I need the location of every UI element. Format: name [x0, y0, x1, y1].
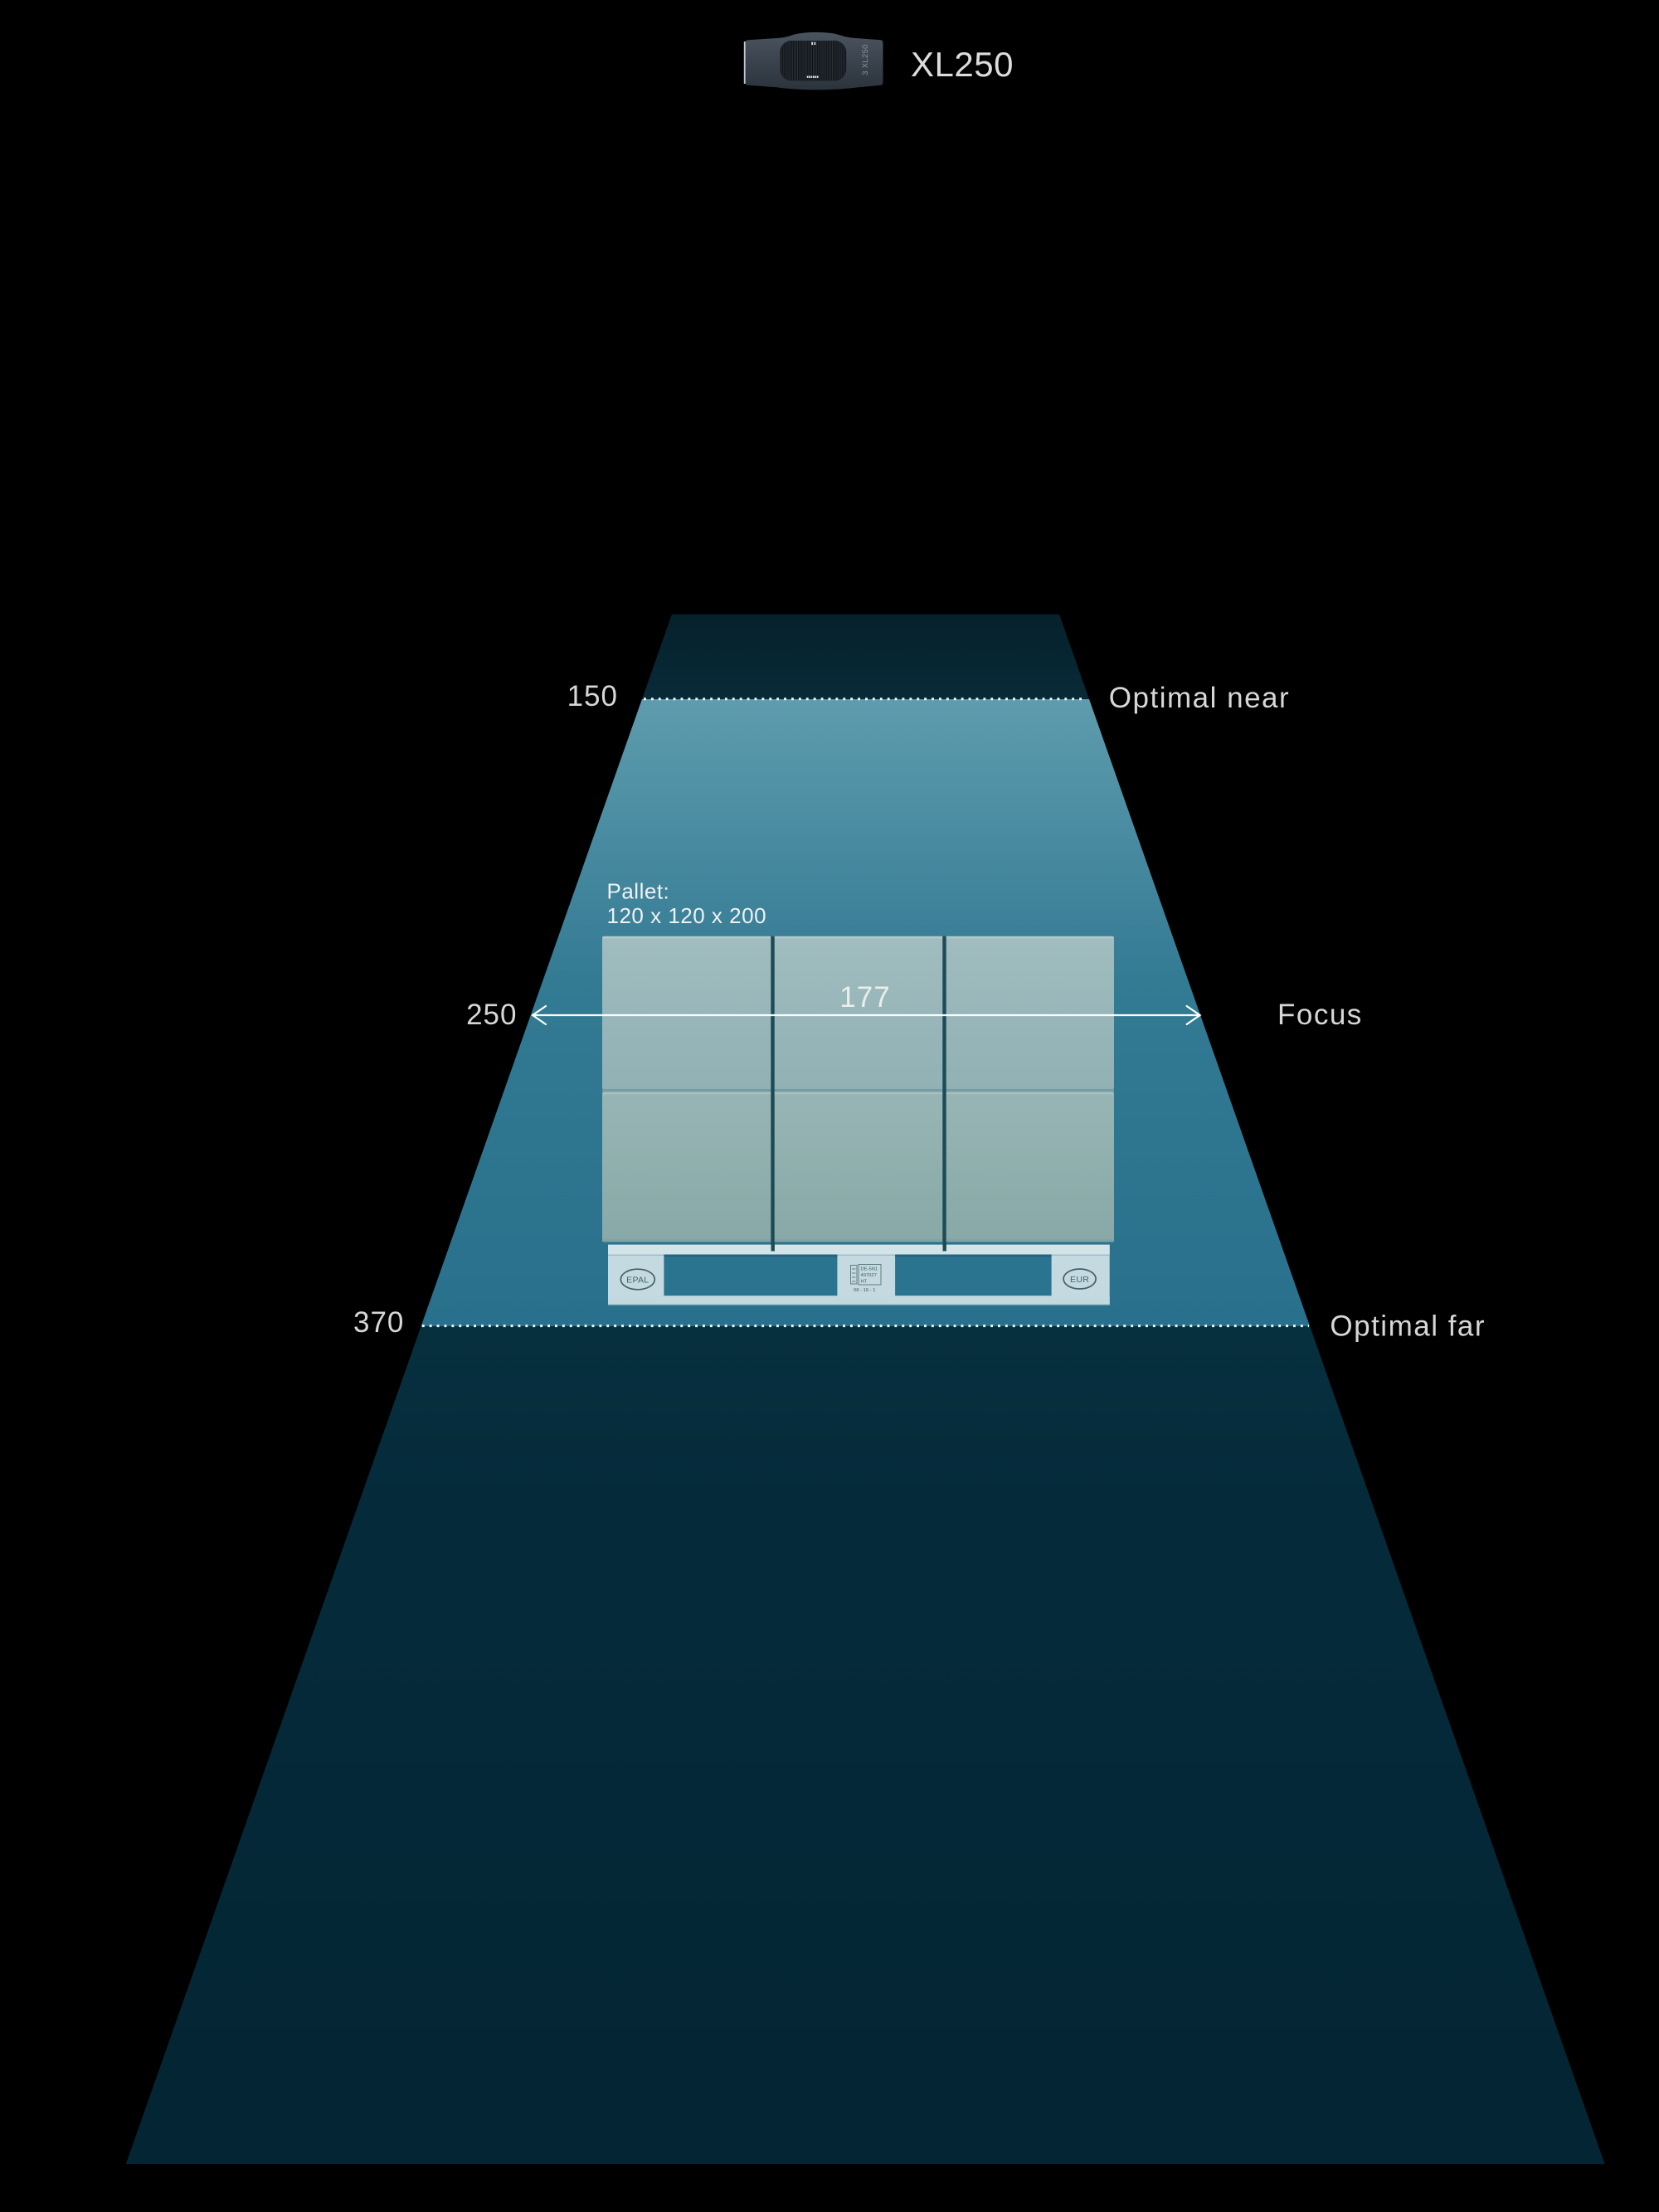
svg-text:Optimal far: Optimal far	[1330, 1310, 1486, 1343]
svg-text:177: 177	[839, 981, 890, 1014]
svg-text:XL250: XL250	[911, 45, 1014, 84]
svg-text:HT: HT	[861, 1280, 868, 1285]
svg-text:150: 150	[567, 680, 618, 712]
svg-text:497027: 497027	[861, 1273, 877, 1278]
svg-text:120 x 120 x 200: 120 x 120 x 200	[607, 903, 767, 928]
svg-text:Pallet:: Pallet:	[607, 879, 670, 904]
svg-text:250: 250	[466, 999, 517, 1031]
svg-text:EUR: EUR	[1070, 1275, 1089, 1285]
svg-text:08 - 16 - 1: 08 - 16 - 1	[854, 1288, 875, 1293]
svg-text:Optimal near: Optimal near	[1109, 682, 1290, 714]
svg-text:DE-5N1: DE-5N1	[861, 1267, 878, 1272]
svg-text:Focus: Focus	[1277, 999, 1363, 1031]
svg-text:3 XL250: 3 XL250	[861, 44, 870, 75]
svg-text:EPAL: EPAL	[626, 1275, 649, 1285]
svg-text:370: 370	[353, 1306, 404, 1339]
